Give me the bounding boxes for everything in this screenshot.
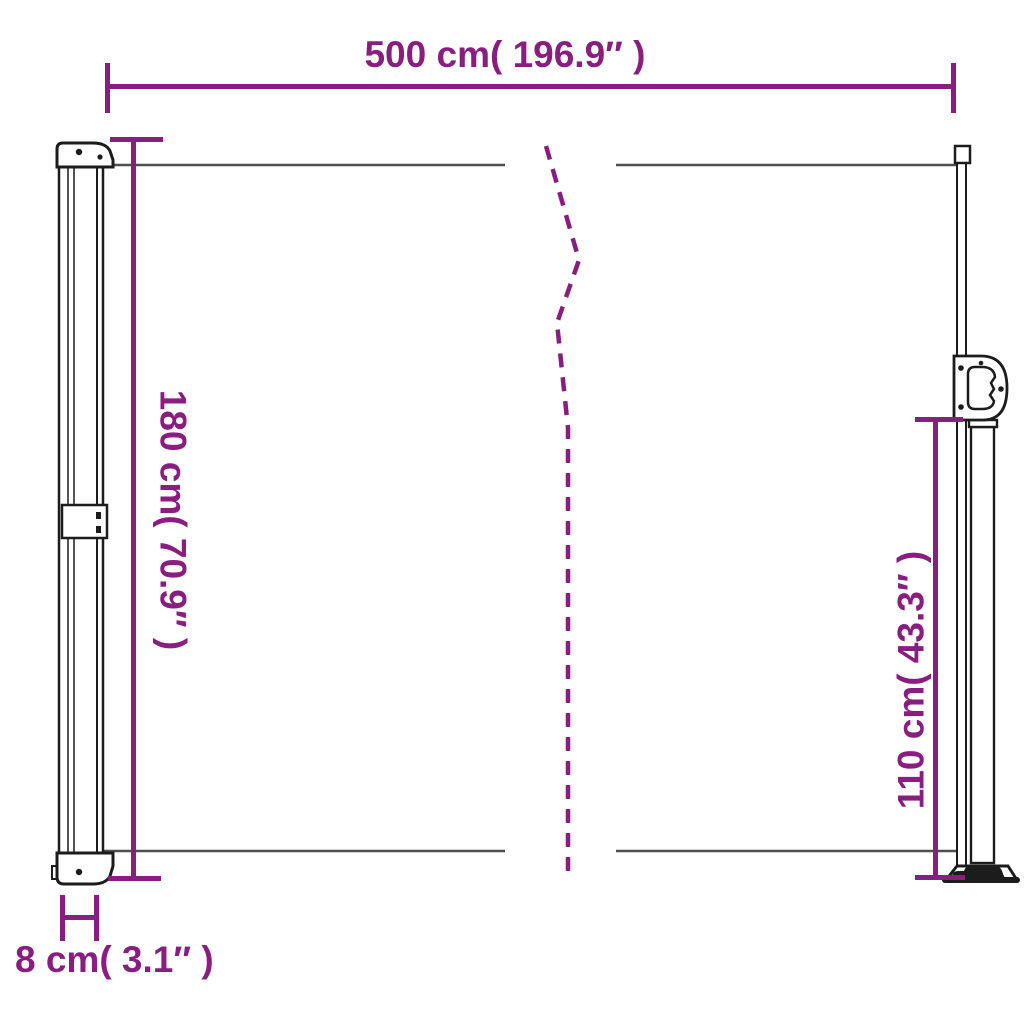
cassette-bottom-cap [57,853,113,884]
height-pole-dimension-label: 110 cm( 43.3″ ) [893,551,932,809]
width-dimension-tick-right [951,63,956,113]
screw-icon [998,386,1004,392]
support-pole [969,420,997,863]
screw-icon [76,149,82,155]
height-pole-dimension-line [933,420,938,880]
front-rail [955,146,970,866]
height-pole-dimension-tick-bottom [915,875,965,880]
depth-dimension-label: 8 cm( 3.1″ ) [15,941,214,980]
bracket-clip [96,512,101,519]
depth-dimension-line [60,915,99,920]
handle-grip-cutout [968,367,995,409]
fabric-break-line [546,146,579,873]
fabric-screen-edges [103,165,957,851]
screw-icon [958,404,964,410]
height-total-dimension-line [131,139,136,881]
screw-icon [979,361,984,366]
screw-icon [958,365,964,371]
height-total-dimension-tick-top [110,137,163,142]
screw-icon [97,154,102,159]
height-pole-dimension-tick-top [915,417,963,422]
cassette-top-cap [57,143,113,167]
diagram-canvas: 500 cm( 196.9″ ) 180 cm( 70.9″ ) 110 cm(… [0,0,1024,1024]
wall-bracket [62,505,107,538]
width-dimension-label: 500 cm( 196.9″ ) [105,36,905,75]
height-total-dimension-label: 180 cm( 70.9″ ) [153,390,192,650]
cassette-post [52,143,113,884]
pull-handle [954,356,1007,420]
screw-icon [76,869,82,875]
bracket-clip [96,526,101,533]
height-total-dimension-tick-bottom [108,876,161,881]
width-dimension-line [107,84,953,89]
rail-top-cap [955,146,970,163]
width-dimension-tick-left [105,63,110,113]
